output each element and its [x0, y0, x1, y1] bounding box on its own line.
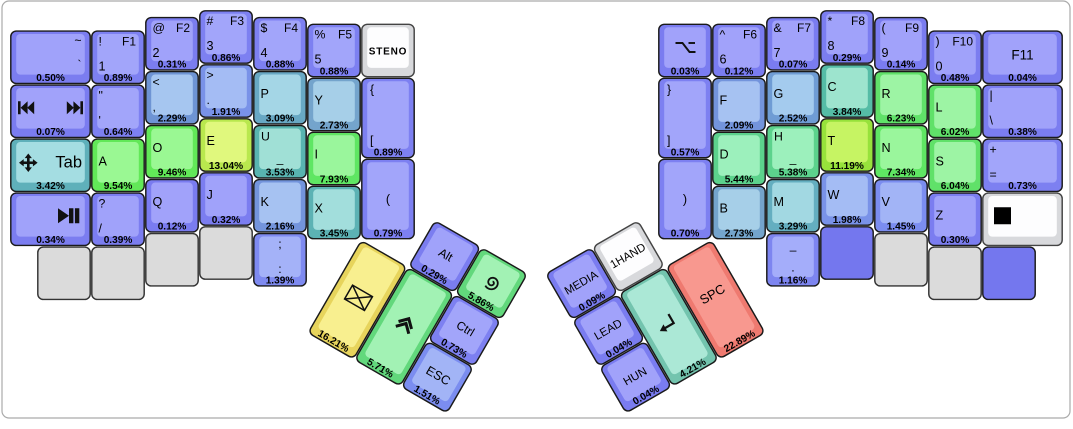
- svg-text:): ): [683, 193, 687, 207]
- svg-text:S: S: [936, 154, 944, 168]
- svg-text:@: @: [153, 21, 165, 35]
- svg-text:F11: F11: [1011, 48, 1033, 63]
- svg-text:0.89%: 0.89%: [104, 73, 133, 84]
- svg-text:H: H: [774, 129, 783, 143]
- svg-text:0.30%: 0.30%: [941, 235, 970, 246]
- svg-text:]: ]: [667, 134, 670, 148]
- svg-text:0.39%: 0.39%: [104, 235, 133, 246]
- svg-text::: :: [278, 262, 281, 276]
- svg-text:7: 7: [774, 46, 781, 60]
- svg-text:I: I: [315, 148, 319, 162]
- svg-text:V: V: [882, 195, 891, 209]
- svg-text:2: 2: [153, 46, 160, 60]
- svg-text:0.73%: 0.73%: [1008, 181, 1037, 192]
- svg-text:5.38%: 5.38%: [779, 168, 808, 179]
- svg-text:7.93%: 7.93%: [320, 174, 349, 185]
- svg-text:): ): [936, 34, 940, 48]
- svg-text:&: &: [774, 21, 783, 35]
- svg-text:3: 3: [207, 39, 214, 53]
- svg-text:,: ,: [153, 100, 156, 114]
- svg-text:0.86%: 0.86%: [212, 53, 241, 64]
- svg-text:F9: F9: [905, 21, 919, 35]
- svg-text:0.07%: 0.07%: [779, 60, 808, 71]
- svg-text:0.34%: 0.34%: [36, 235, 65, 246]
- svg-text:#: #: [207, 14, 214, 28]
- svg-text:0.38%: 0.38%: [1008, 127, 1037, 138]
- svg-text:8: 8: [828, 39, 835, 53]
- svg-text:\: \: [990, 113, 994, 127]
- svg-text:1: 1: [99, 59, 106, 73]
- svg-text:": ": [99, 88, 103, 102]
- svg-text:|: |: [990, 88, 993, 102]
- svg-text:2.52%: 2.52%: [779, 114, 808, 125]
- svg-text:': ': [99, 113, 101, 127]
- svg-text:F7: F7: [797, 21, 811, 35]
- svg-text:F5: F5: [338, 28, 352, 42]
- svg-text:{: {: [370, 83, 374, 97]
- svg-text:/: /: [99, 221, 103, 235]
- svg-text:B: B: [720, 202, 728, 216]
- svg-text:%: %: [315, 28, 326, 42]
- svg-text:1.98%: 1.98%: [833, 215, 862, 226]
- svg-text:0.50%: 0.50%: [36, 73, 65, 84]
- svg-text:1.16%: 1.16%: [779, 276, 808, 287]
- svg-text:P: P: [261, 87, 269, 101]
- svg-text:_: _: [276, 151, 284, 165]
- svg-text:0.88%: 0.88%: [320, 66, 349, 77]
- svg-text:U: U: [261, 129, 270, 143]
- svg-text:X: X: [315, 202, 324, 216]
- svg-text:T: T: [828, 134, 836, 148]
- svg-text:`: `: [77, 57, 81, 71]
- svg-text:E: E: [207, 134, 215, 148]
- svg-text:+: +: [990, 142, 997, 156]
- svg-text:Tab: Tab: [55, 154, 82, 172]
- svg-text:6.02%: 6.02%: [941, 127, 970, 138]
- svg-text:0: 0: [936, 59, 943, 73]
- svg-text:STENO: STENO: [369, 47, 407, 58]
- svg-text:G: G: [774, 87, 784, 101]
- svg-text:^: ^: [720, 28, 726, 42]
- svg-text:0.32%: 0.32%: [212, 215, 241, 226]
- svg-text:7.34%: 7.34%: [887, 168, 916, 179]
- svg-text:0.31%: 0.31%: [158, 60, 187, 71]
- svg-text:6.23%: 6.23%: [887, 114, 916, 125]
- svg-text:5: 5: [315, 53, 322, 67]
- svg-text:F6: F6: [743, 28, 757, 42]
- svg-text:K: K: [261, 195, 270, 209]
- svg-text:3.45%: 3.45%: [320, 228, 349, 239]
- svg-text:Z: Z: [936, 208, 944, 222]
- svg-text:0.57%: 0.57%: [671, 147, 700, 158]
- svg-text:!: !: [99, 34, 102, 48]
- svg-text:<: <: [153, 75, 160, 89]
- svg-text:2.09%: 2.09%: [725, 120, 754, 131]
- svg-text:A: A: [99, 154, 108, 168]
- svg-text:0.48%: 0.48%: [941, 73, 970, 84]
- svg-text:[: [: [370, 134, 374, 148]
- svg-text:3.09%: 3.09%: [266, 114, 295, 125]
- svg-text:9.54%: 9.54%: [104, 181, 133, 192]
- svg-text:3.29%: 3.29%: [779, 222, 808, 233]
- svg-text:0.03%: 0.03%: [671, 66, 700, 77]
- svg-text:6.04%: 6.04%: [941, 181, 970, 192]
- svg-text:?: ?: [99, 196, 106, 210]
- svg-text:1.91%: 1.91%: [212, 107, 241, 118]
- svg-text:.: .: [207, 93, 210, 107]
- svg-text:3.84%: 3.84%: [833, 107, 862, 118]
- svg-text:L: L: [936, 100, 943, 114]
- svg-text:D: D: [720, 148, 729, 162]
- svg-text:3.42%: 3.42%: [36, 181, 65, 192]
- svg-text:F10: F10: [952, 34, 973, 48]
- svg-text:Y: Y: [315, 94, 324, 108]
- svg-text:}: }: [667, 83, 671, 97]
- svg-text:2.73%: 2.73%: [320, 120, 349, 131]
- svg-text:3.53%: 3.53%: [266, 168, 295, 179]
- svg-text:2.29%: 2.29%: [158, 114, 187, 125]
- svg-text:0.79%: 0.79%: [374, 228, 403, 239]
- svg-text:C: C: [828, 80, 837, 94]
- svg-text:_: _: [789, 151, 797, 165]
- svg-text:N: N: [882, 141, 891, 155]
- svg-text:0.88%: 0.88%: [266, 60, 295, 71]
- svg-text:>: >: [207, 68, 214, 82]
- svg-text:2.16%: 2.16%: [266, 222, 295, 233]
- svg-text:4: 4: [261, 46, 268, 60]
- svg-text:11.19%: 11.19%: [830, 161, 864, 172]
- svg-text:1.45%: 1.45%: [887, 222, 916, 233]
- svg-text:M: M: [774, 195, 785, 209]
- svg-text:~: ~: [74, 33, 81, 47]
- svg-text:13.04%: 13.04%: [209, 161, 243, 172]
- svg-text:F4: F4: [284, 21, 298, 35]
- svg-text:6: 6: [720, 53, 727, 67]
- svg-text:0.29%: 0.29%: [833, 53, 862, 64]
- svg-text:0.14%: 0.14%: [887, 60, 916, 71]
- svg-text:–: –: [790, 243, 797, 257]
- svg-text:F: F: [720, 94, 728, 108]
- svg-text:5.44%: 5.44%: [725, 174, 754, 185]
- svg-text:=: =: [990, 167, 997, 181]
- svg-text:9.46%: 9.46%: [158, 168, 187, 179]
- svg-text:0.12%: 0.12%: [158, 222, 187, 233]
- svg-text:F1: F1: [122, 34, 136, 48]
- svg-text:0.70%: 0.70%: [671, 228, 700, 239]
- svg-text:0.89%: 0.89%: [374, 147, 403, 158]
- svg-text:0.64%: 0.64%: [104, 127, 133, 138]
- svg-text:F3: F3: [230, 14, 244, 28]
- svg-text:F8: F8: [851, 14, 865, 28]
- svg-text:1.39%: 1.39%: [266, 276, 295, 287]
- svg-text:0.12%: 0.12%: [725, 66, 754, 77]
- svg-text:2.73%: 2.73%: [725, 228, 754, 239]
- svg-text:O: O: [153, 141, 163, 155]
- svg-text:R: R: [882, 87, 891, 101]
- svg-text:0.04%: 0.04%: [1008, 73, 1037, 84]
- svg-text:W: W: [828, 188, 840, 202]
- svg-text:*: *: [828, 14, 833, 28]
- svg-text:F2: F2: [176, 21, 190, 35]
- svg-text:J: J: [207, 188, 213, 202]
- svg-text:0.07%: 0.07%: [36, 127, 65, 138]
- svg-text:Q: Q: [153, 195, 163, 209]
- svg-text:;: ;: [278, 237, 281, 251]
- svg-text:9: 9: [882, 46, 889, 60]
- svg-text:.: .: [791, 260, 794, 274]
- svg-text:$: $: [261, 21, 268, 35]
